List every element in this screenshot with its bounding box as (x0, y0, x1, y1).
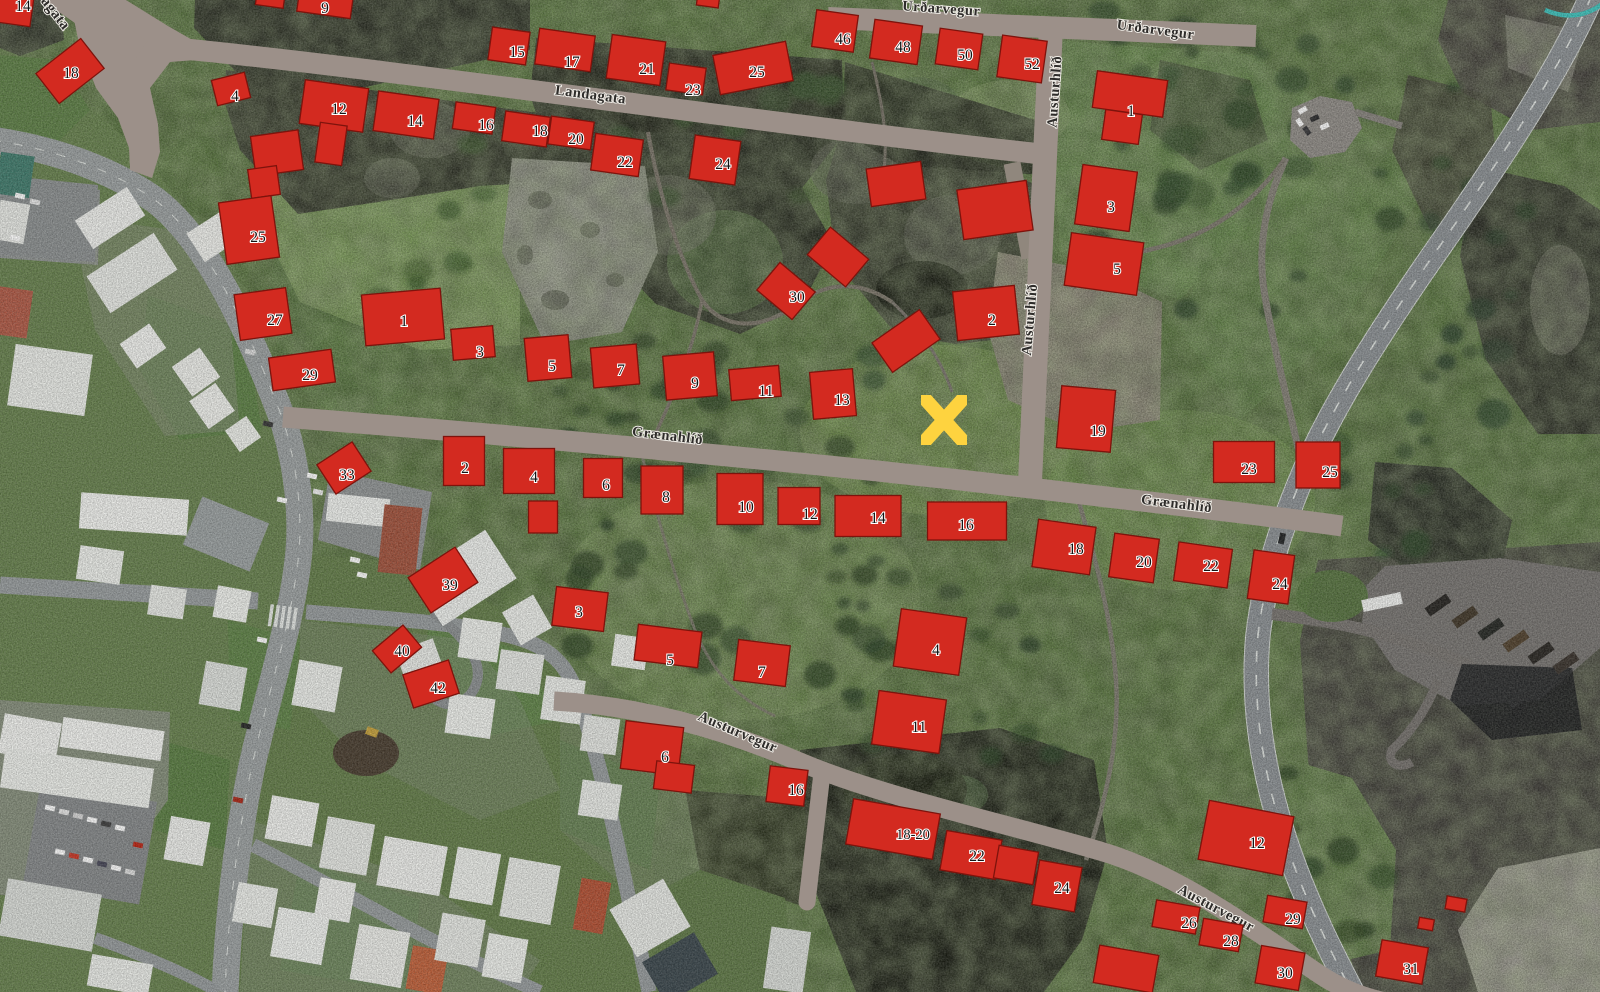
svg-text:50: 50 (957, 47, 973, 64)
svg-text:9: 9 (321, 0, 329, 17)
svg-text:24: 24 (715, 156, 731, 173)
svg-text:1: 1 (400, 313, 408, 330)
svg-text:16: 16 (788, 782, 804, 799)
svg-text:12: 12 (1249, 835, 1265, 852)
svg-text:16: 16 (958, 517, 974, 534)
svg-text:33: 33 (339, 467, 355, 484)
svg-text:5: 5 (1113, 261, 1121, 278)
svg-text:14: 14 (15, 0, 31, 15)
svg-text:2: 2 (988, 312, 996, 329)
svg-text:46: 46 (835, 31, 851, 48)
svg-text:19: 19 (1090, 423, 1106, 440)
svg-text:20: 20 (1136, 554, 1152, 571)
svg-text:31: 31 (1403, 961, 1419, 978)
svg-text:17: 17 (564, 54, 580, 71)
svg-text:25: 25 (250, 229, 266, 246)
svg-text:4: 4 (932, 642, 940, 659)
svg-text:9: 9 (691, 375, 699, 392)
svg-text:7: 7 (758, 664, 766, 681)
svg-text:10: 10 (738, 499, 754, 516)
svg-text:2: 2 (461, 460, 469, 477)
svg-text:21: 21 (639, 61, 655, 78)
svg-text:6: 6 (661, 749, 669, 766)
svg-text:1: 1 (1127, 103, 1135, 120)
svg-text:25: 25 (1322, 464, 1338, 481)
svg-text:11: 11 (759, 383, 774, 400)
svg-text:18: 18 (532, 123, 548, 140)
svg-text:6: 6 (602, 477, 610, 494)
svg-text:18: 18 (1068, 541, 1084, 558)
svg-text:13: 13 (834, 392, 850, 409)
svg-text:14: 14 (407, 113, 423, 130)
svg-text:48: 48 (895, 39, 911, 56)
svg-text:7: 7 (617, 362, 625, 379)
svg-text:8: 8 (662, 489, 670, 506)
svg-text:30: 30 (1277, 965, 1293, 982)
svg-text:20: 20 (568, 131, 584, 148)
svg-text:5: 5 (548, 358, 556, 375)
svg-text:22: 22 (617, 154, 633, 171)
svg-text:23: 23 (1241, 461, 1257, 478)
svg-text:29: 29 (1285, 911, 1301, 928)
svg-text:12: 12 (331, 101, 347, 118)
svg-text:15: 15 (509, 44, 525, 61)
svg-text:52: 52 (1024, 56, 1040, 73)
svg-text:3: 3 (476, 344, 484, 361)
svg-text:3: 3 (1107, 199, 1115, 216)
svg-text:12: 12 (802, 506, 818, 523)
svg-text:28: 28 (1223, 933, 1239, 950)
svg-text:22: 22 (969, 848, 985, 865)
svg-text:16: 16 (478, 117, 494, 134)
svg-text:25: 25 (749, 64, 765, 81)
svg-text:22: 22 (1203, 558, 1219, 575)
svg-text:29: 29 (302, 367, 318, 384)
svg-text:18: 18 (63, 65, 79, 82)
svg-text:26: 26 (1181, 915, 1197, 932)
svg-text:30: 30 (789, 289, 805, 306)
svg-text:4: 4 (231, 88, 239, 105)
svg-text:42: 42 (430, 680, 446, 697)
svg-text:39: 39 (442, 577, 458, 594)
svg-text:24: 24 (1272, 576, 1288, 593)
svg-text:5: 5 (666, 652, 674, 669)
svg-text:14: 14 (870, 510, 886, 527)
svg-text:27: 27 (267, 312, 283, 329)
svg-text:18-20: 18-20 (896, 827, 930, 843)
svg-text:40: 40 (394, 643, 410, 660)
svg-text:24: 24 (1054, 880, 1070, 897)
svg-text:4: 4 (530, 469, 538, 486)
svg-text:23: 23 (685, 82, 701, 99)
svg-text:11: 11 (912, 719, 927, 736)
svg-text:3: 3 (575, 604, 583, 621)
